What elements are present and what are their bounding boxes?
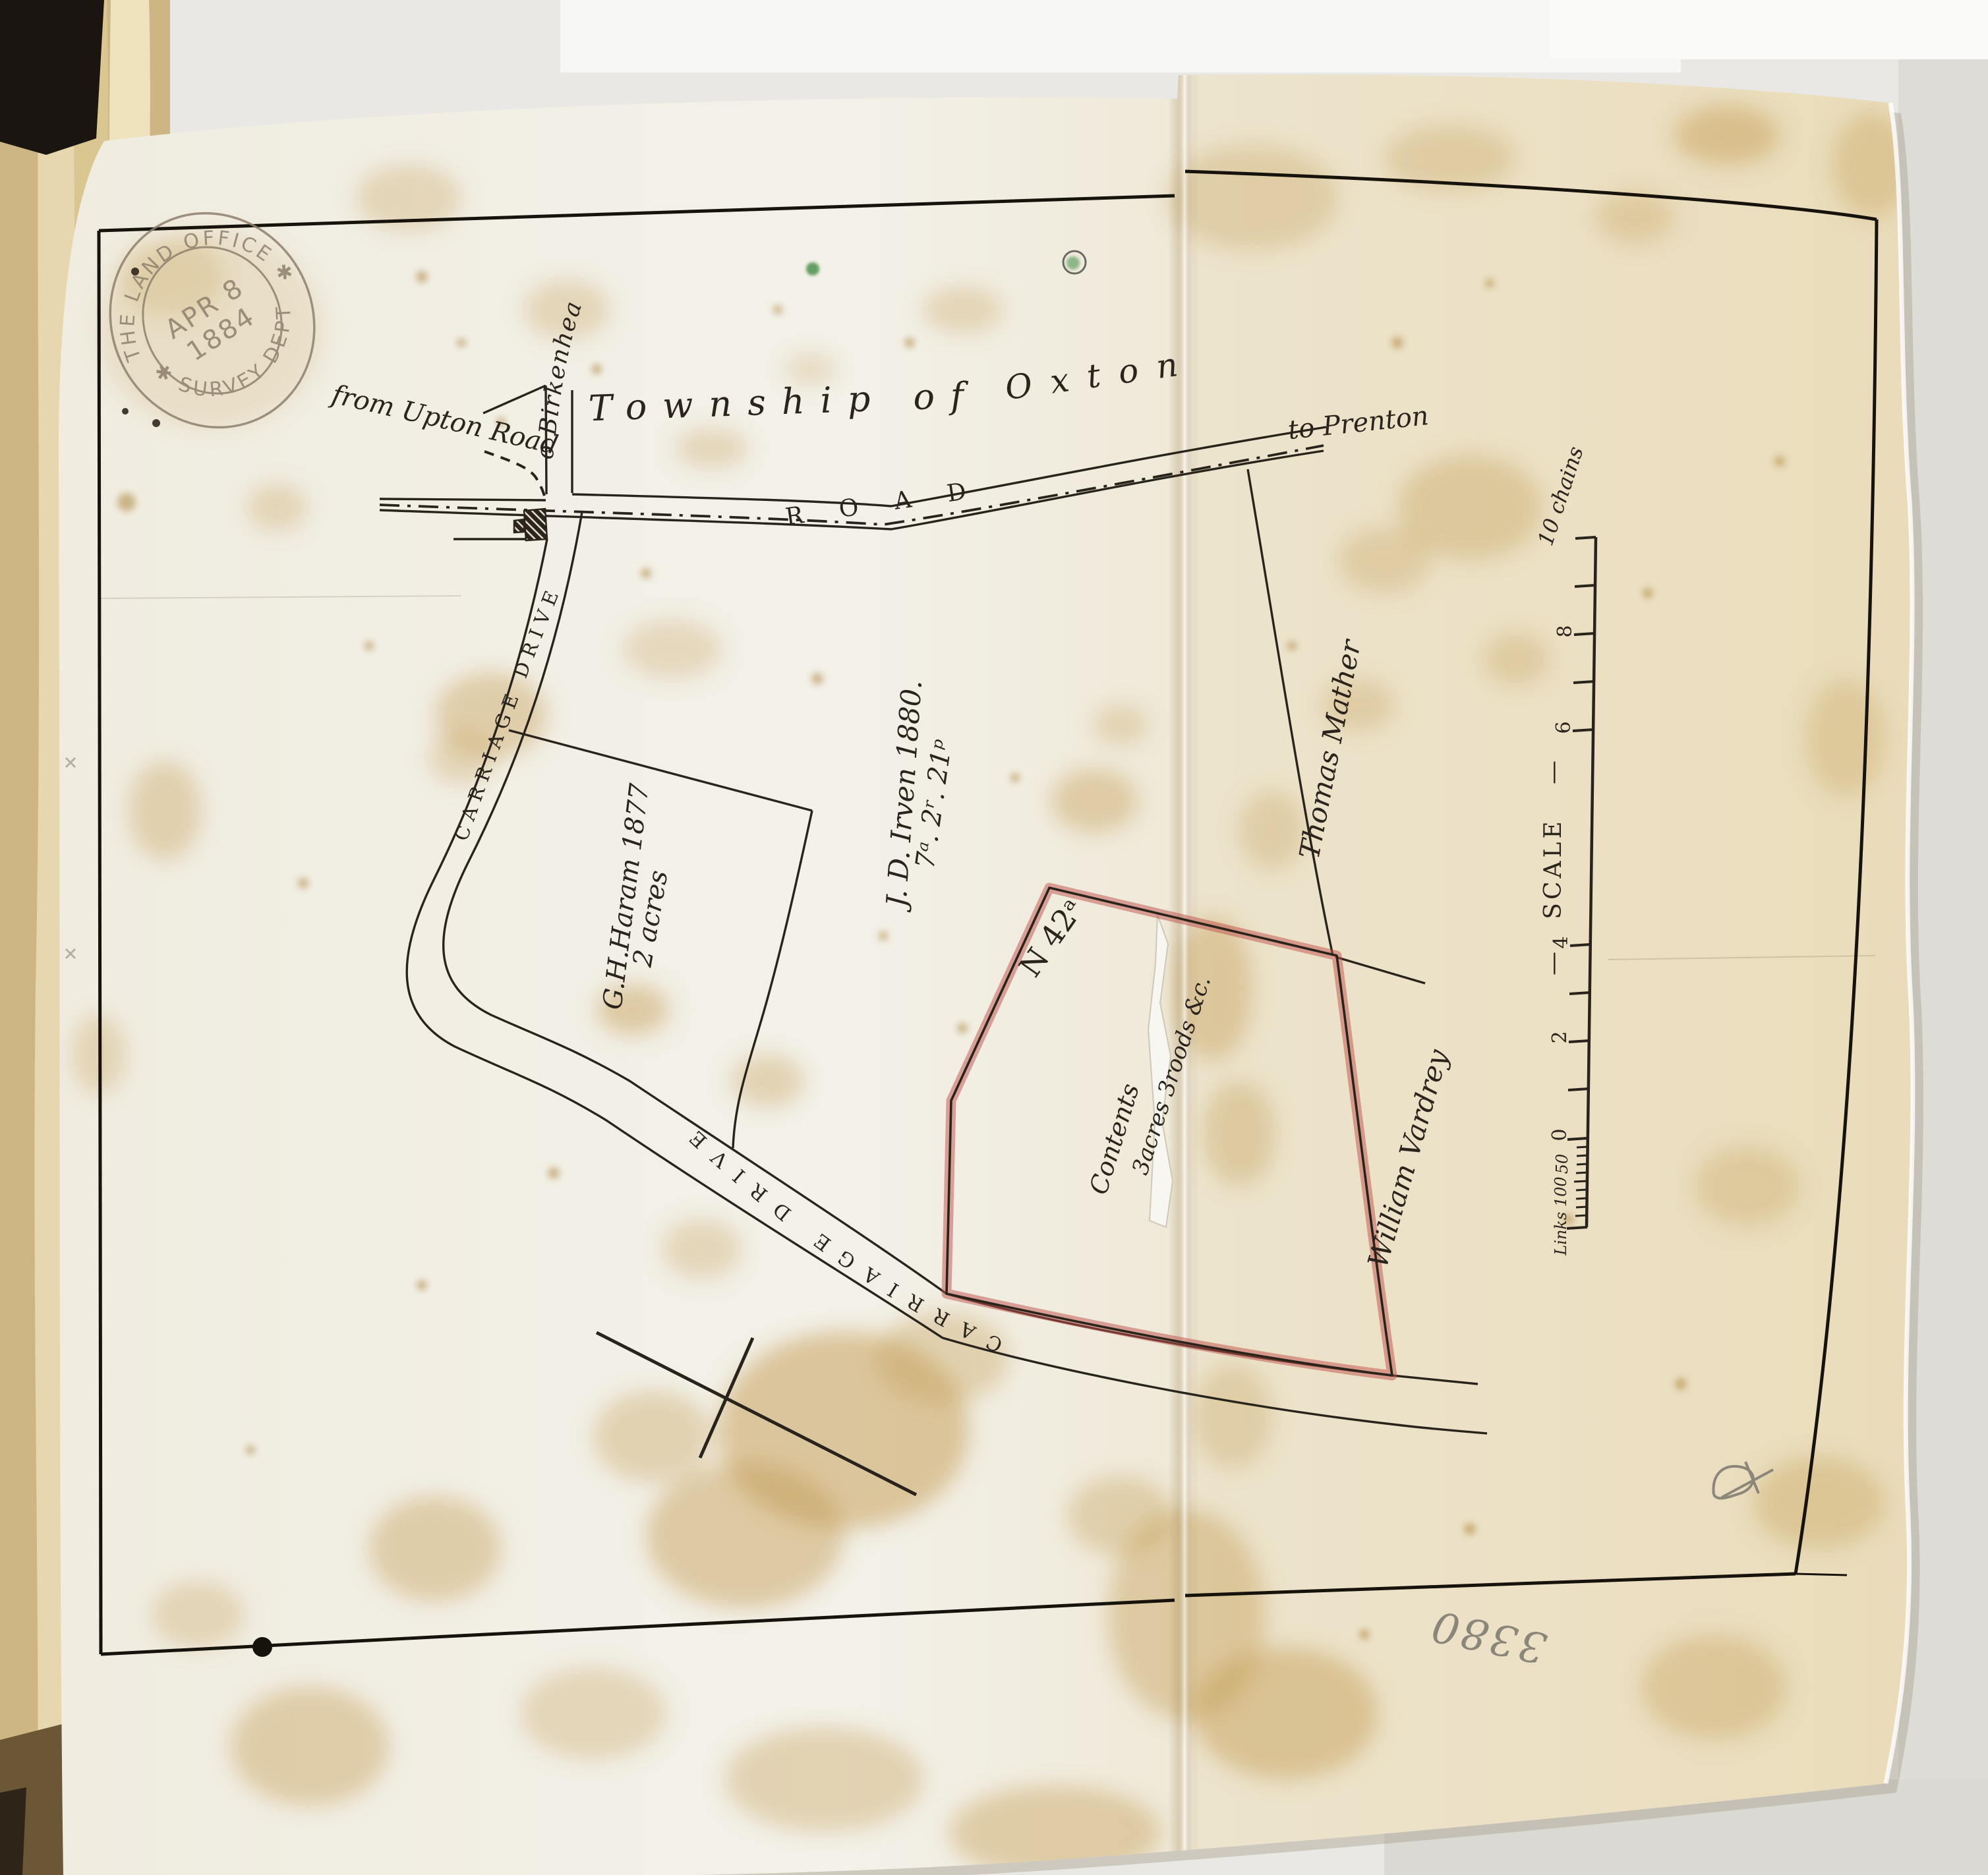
scale-label-100-links: Links 100	[1552, 1176, 1570, 1255]
scale-dash-lower: —	[1540, 952, 1567, 975]
ink-blot	[252, 1637, 272, 1657]
scale-label-50-links: 50	[1553, 1154, 1571, 1174]
green-ring-fill	[1067, 256, 1080, 270]
scale-dash-upper: —	[1540, 761, 1567, 784]
sheet-seam-fold	[1168, 66, 1198, 1859]
scale-label-0: 0	[1548, 1128, 1571, 1141]
backing-sheet-top-right	[1549, 0, 1988, 59]
scale-label-8: 8	[1554, 625, 1577, 637]
scale-label-6: 6	[1552, 721, 1575, 734]
green-dot	[806, 262, 819, 275]
scanned-survey-map: Township of Oxton from Upton Road to Bir…	[0, 0, 1988, 1875]
backing-sheet-top	[560, 0, 1681, 72]
scale-label-4: 4	[1550, 936, 1573, 948]
scale-word: SCALE	[1540, 818, 1567, 919]
scale-label-2: 2	[1548, 1031, 1571, 1043]
upton-road-upper-edge	[380, 499, 546, 500]
